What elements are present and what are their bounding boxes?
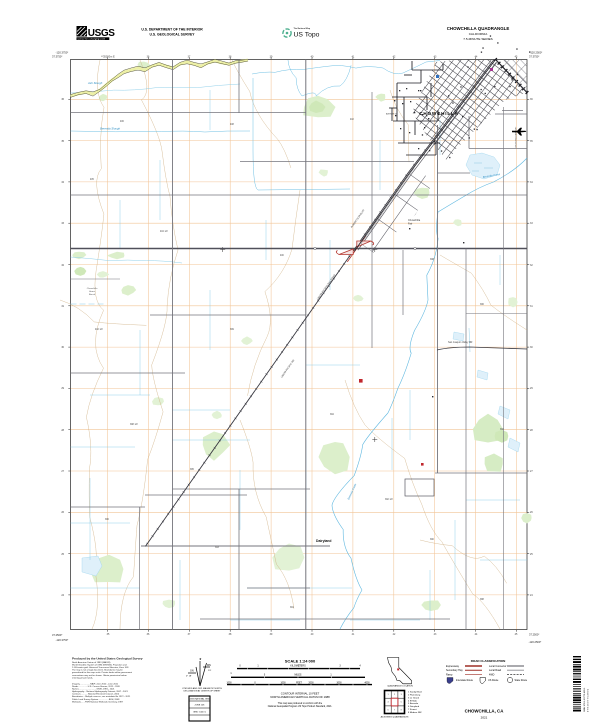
svg-text:GRID: 1000 m: GRID: 1000 m <box>193 712 206 714</box>
svg-text:24: 24 <box>530 594 533 597</box>
svg-text:1: 1 <box>387 694 389 696</box>
svg-text:AVENUE 26: AVENUE 26 <box>386 113 398 116</box>
svg-text:1: 1 <box>257 666 259 668</box>
svg-text:33: 33 <box>61 222 64 225</box>
svg-text:43: 43 <box>434 633 437 636</box>
svg-text:CONTOUR INTERVAL 10 FEET: CONTOUR INTERVAL 10 FEET <box>281 692 320 696</box>
svg-text:36: 36 <box>147 633 150 636</box>
svg-text:GN: GN <box>190 670 194 673</box>
svg-text:1: 1 <box>330 674 332 676</box>
svg-text:0: 0 <box>264 674 266 676</box>
svg-text:2000: 2000 <box>308 682 314 684</box>
svg-text:40: 40 <box>311 55 314 58</box>
svg-text:ADJOINING QUADRANGLES: ADJOINING QUADRANGLES <box>381 716 409 719</box>
svg-text:31: 31 <box>530 305 533 308</box>
svg-text:science for a changing world: science for a changing world <box>77 39 106 41</box>
svg-text:NORTH AMERICAN VERTICAL DATUM: NORTH AMERICAN VERTICAL DATUM OF 1988 <box>270 695 330 699</box>
svg-text:38: 38 <box>229 633 232 636</box>
svg-text:402 1/2: 402 1/2 <box>95 329 103 331</box>
svg-text:World Geodetic System of 1984: World Geodetic System of 1984 (WGS84). P… <box>72 664 127 667</box>
svg-text:National Geospatial Program US: National Geospatial Program US Topo Prod… <box>268 705 333 708</box>
svg-text:ZONE 10S: ZONE 10S <box>195 705 205 707</box>
svg-text:3000: 3000 <box>336 682 342 684</box>
svg-text:ROAD CLASSIFICATION: ROAD CLASSIFICATION <box>471 659 506 663</box>
svg-text:0° 18': 0° 18' <box>186 676 192 678</box>
svg-text:Produced by the United States: Produced by the United States Geological… <box>72 657 143 661</box>
svg-text:UTM GRID AND 2021 MAGNETIC NOR: UTM GRID AND 2021 MAGNETIC NORTH <box>182 687 222 690</box>
svg-text:4: 4 <box>359 666 361 668</box>
svg-text:8: 8 <box>401 709 403 711</box>
svg-text:37: 37 <box>188 633 191 636</box>
svg-text:QUADRANGLE LOCATION: QUADRANGLE LOCATION <box>387 685 413 688</box>
svg-text:30: 30 <box>61 346 64 349</box>
svg-text:32: 32 <box>530 264 533 267</box>
svg-text:3 Le Grand: 3 Le Grand <box>408 696 420 699</box>
svg-text:Expressway: Expressway <box>446 665 460 668</box>
svg-text:CHOWCHILLA QUADRANGLE: CHOWCHILLA QUADRANGLE <box>447 26 510 31</box>
svg-text:6 Dairyland: 6 Dairyland <box>408 705 420 708</box>
svg-text:4WD: 4WD <box>489 673 495 676</box>
svg-text:Hydrography....National Hydrog: Hydrography....National Hydrography Data… <box>72 690 129 693</box>
svg-text:31: 31 <box>61 305 64 308</box>
svg-text:★: ★ <box>199 657 202 661</box>
svg-text:The map is not a legal documen: The map is not a legal document. Boundar… <box>72 669 124 672</box>
svg-text:44: 44 <box>475 55 478 58</box>
svg-text:1000: 1000 <box>226 682 232 684</box>
svg-text:CHOWCHILLA: CHOWCHILLA <box>419 111 458 116</box>
svg-text:Secondary Hwy: Secondary Hwy <box>446 669 464 672</box>
svg-text:398 1/2: 398 1/2 <box>130 424 138 426</box>
svg-text:40: 40 <box>311 633 314 636</box>
svg-text:36: 36 <box>530 98 533 101</box>
svg-text:37.3750°: 37.3750° <box>52 55 62 59</box>
svg-text:1: 1 <box>230 673 232 675</box>
svg-text:37.2500°: 37.2500° <box>529 633 539 637</box>
svg-text:7: 7 <box>394 709 396 711</box>
svg-text:45: 45 <box>515 633 518 636</box>
svg-text:404 1/2: 404 1/2 <box>160 231 168 233</box>
svg-text:33: 33 <box>530 222 533 225</box>
svg-text:2021: 2021 <box>481 716 488 720</box>
svg-text:26: 26 <box>530 511 533 514</box>
svg-text:CHOWCHILLA AIRPORT: CHOWCHILLA AIRPORT <box>515 126 518 148</box>
svg-text:37.2500°: 37.2500° <box>52 633 62 637</box>
svg-text:13°: 13° <box>208 670 211 672</box>
svg-text:24: 24 <box>61 594 64 597</box>
svg-text:6: 6 <box>387 709 389 711</box>
svg-text:5 Berenda: 5 Berenda <box>408 702 419 705</box>
svg-text:Boundaries....Multiple sources: Boundaries....Multiple sources; see meta… <box>72 695 131 698</box>
svg-text:Public Land Survey System.....: Public Land Survey System...............… <box>72 698 120 701</box>
svg-text:USGS NATIONAL GRID: USGS NATIONAL GRID <box>189 698 210 701</box>
svg-text:-120.2500°: -120.2500° <box>529 640 542 644</box>
svg-text:35: 35 <box>530 140 533 143</box>
svg-text:25: 25 <box>530 553 533 556</box>
svg-text:27: 27 <box>61 470 64 473</box>
svg-text:ISBN 978-1-60775-480-1: ISBN 978-1-60775-480-1 <box>584 687 586 712</box>
svg-text:Wetlands.......FWS National We: Wetlands.......FWS National Wetlands Inv… <box>72 700 124 703</box>
svg-text:29: 29 <box>61 387 64 390</box>
svg-text:This map was produced to confo: This map was produced to conform with th… <box>278 702 323 705</box>
svg-text:3: 3 <box>339 666 341 668</box>
svg-text:41: 41 <box>352 633 355 636</box>
svg-text:CALIFORNIA: CALIFORNIA <box>469 32 489 36</box>
svg-text:Local Road: Local Road <box>489 669 502 672</box>
svg-text:35: 35 <box>61 140 64 143</box>
svg-text:MILES: MILES <box>295 674 302 676</box>
svg-text:34: 34 <box>530 181 533 184</box>
svg-text:Home: Home <box>89 291 96 293</box>
svg-text:U.S. GEOLOGICAL SURVEY: U.S. GEOLOGICAL SURVEY <box>149 32 195 36</box>
svg-text:Berenda Slough: Berenda Slough <box>100 127 121 131</box>
svg-text:4: 4 <box>387 702 389 704</box>
svg-text:U.S. DEPARTMENT OF THE INTERIO: U.S. DEPARTMENT OF THE INTERIOR <box>141 28 203 32</box>
svg-text:1000: 1000 <box>280 682 286 684</box>
svg-text:CHOWCHILLA, CA: CHOWCHILLA, CA <box>465 709 505 714</box>
svg-text:28: 28 <box>530 429 533 432</box>
svg-text:Dairyland: Dairyland <box>316 539 331 543</box>
svg-text:26: 26 <box>61 511 64 514</box>
svg-text:Chowchilla: Chowchilla <box>87 288 98 290</box>
svg-text:44: 44 <box>475 633 478 636</box>
svg-text:28: 28 <box>61 429 64 432</box>
svg-text:²³35000m E: ²³35000m E <box>101 54 115 58</box>
svg-text:39: 39 <box>270 633 273 636</box>
svg-text:Ramp: Ramp <box>446 673 453 676</box>
svg-text:DECLINATION AT CENTER OF SHEET: DECLINATION AT CENTER OF SHEET <box>184 690 222 693</box>
svg-text:1 Sandy Mush: 1 Sandy Mush <box>408 692 423 694</box>
svg-text:MN: MN <box>207 664 211 667</box>
svg-text:42: 42 <box>393 55 396 58</box>
svg-text:392 1/2: 392 1/2 <box>385 499 393 501</box>
svg-text:7 Kismet: 7 Kismet <box>408 708 417 711</box>
svg-text:-120.2500°: -120.2500° <box>530 51 543 55</box>
svg-text:entering private lands.: entering private lands. <box>72 676 93 679</box>
svg-text:Fair: Fair <box>408 223 412 226</box>
svg-text:2 Plainsburg: 2 Plainsburg <box>408 694 421 697</box>
svg-text:US Route: US Route <box>488 679 499 682</box>
svg-text:Interstate Route: Interstate Route <box>456 679 474 682</box>
svg-text:Ranch: Ranch <box>89 294 96 296</box>
svg-text:7.5-MINUTE SERIES: 7.5-MINUTE SERIES <box>463 37 492 41</box>
svg-text:32: 32 <box>61 264 64 267</box>
svg-text:US Topo: US Topo <box>294 32 320 39</box>
svg-text:9 7 8 1 6 0 7 7 5 4 8 0 1: 9 7 8 1 6 0 7 7 5 4 8 0 1 <box>588 688 590 712</box>
svg-text:27: 27 <box>530 470 533 473</box>
svg-text:42: 42 <box>393 633 396 636</box>
svg-text:-120.3750°: -120.3750° <box>56 51 69 55</box>
svg-text:34: 34 <box>61 181 64 184</box>
svg-text:36: 36 <box>61 98 64 101</box>
svg-text:Ash Slough: Ash Slough <box>87 81 103 85</box>
svg-text:41: 41 <box>352 55 355 58</box>
svg-text:25: 25 <box>61 553 64 556</box>
svg-text:30: 30 <box>530 346 533 349</box>
svg-text:35: 35 <box>107 633 110 636</box>
svg-text:43: 43 <box>434 55 437 58</box>
svg-text:29: 29 <box>530 387 533 390</box>
svg-text:4000: 4000 <box>364 682 370 684</box>
svg-text:3: 3 <box>401 694 403 696</box>
svg-text:37.3750°: 37.3750° <box>529 55 539 59</box>
svg-text:-120.3750°: -120.3750° <box>56 638 69 642</box>
svg-text:State Route: State Route <box>515 679 528 682</box>
svg-text:San Joaquin Valley RR: San Joaquin Valley RR <box>448 341 473 344</box>
svg-text:4 El Nido: 4 El Nido <box>408 700 418 702</box>
svg-text:5: 5 <box>401 702 403 704</box>
svg-text:Local Connector: Local Connector <box>489 665 507 668</box>
svg-text:FEET: FEET <box>296 682 302 684</box>
svg-text:generalized for this map scale: generalized for this map scale. Private … <box>72 671 132 674</box>
svg-text:2: 2 <box>394 694 396 696</box>
svg-text:The National Map: The National Map <box>294 27 311 30</box>
svg-text:0: 0 <box>239 666 241 668</box>
svg-text:8 Madera NW: 8 Madera NW <box>408 711 422 714</box>
svg-text:SCALE 1:24 000: SCALE 1:24 000 <box>285 659 316 664</box>
